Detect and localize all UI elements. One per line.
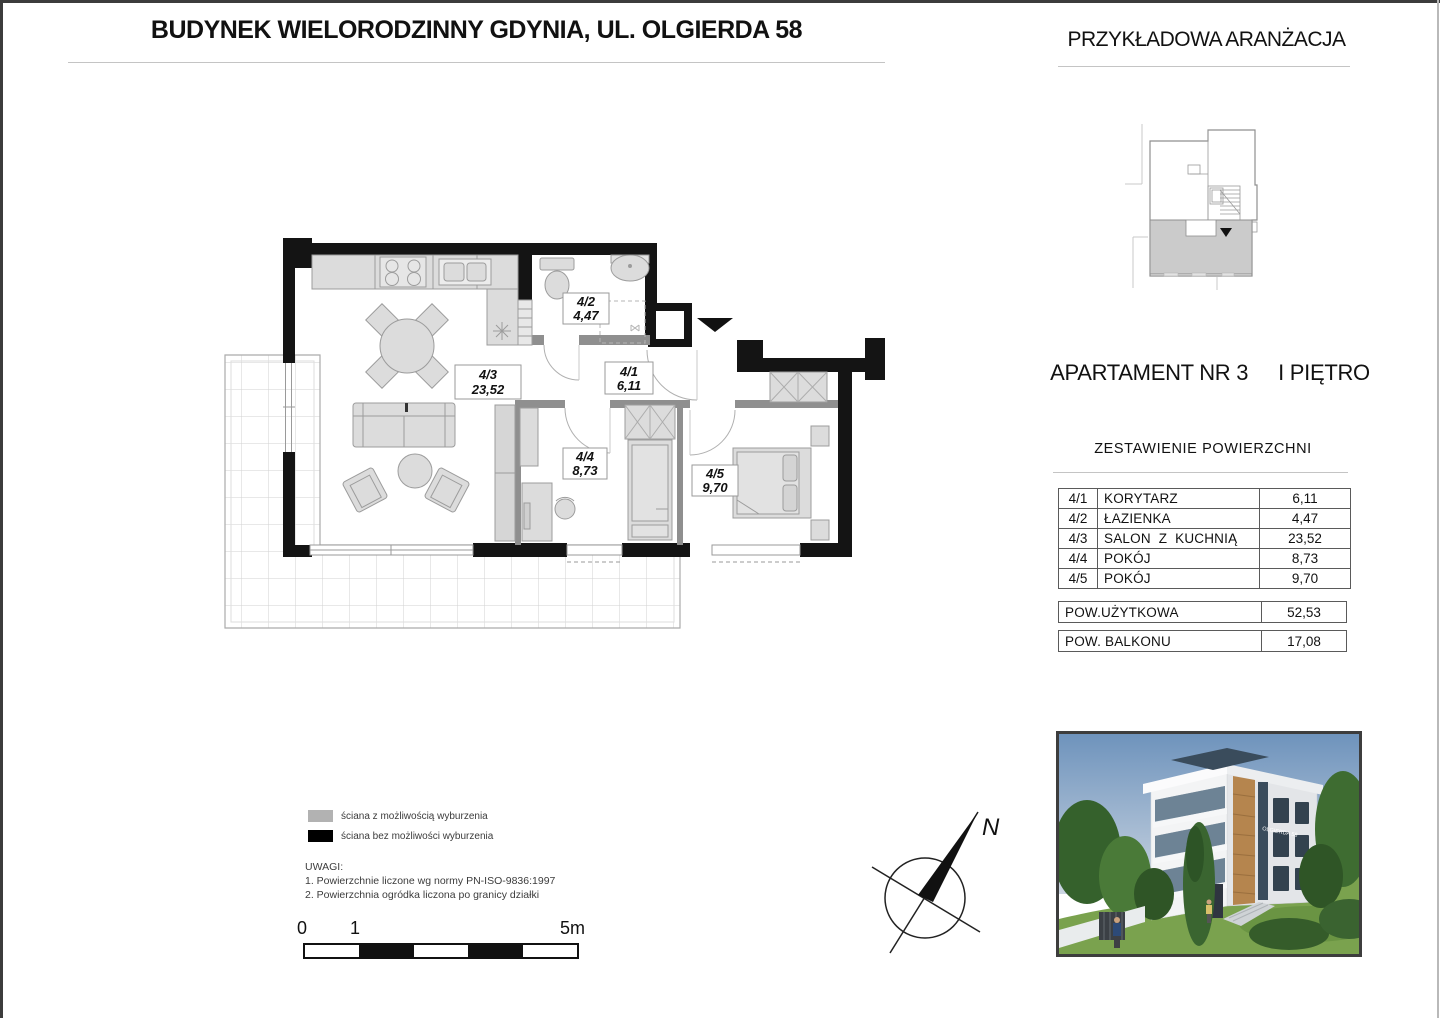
room-label-4-4: 4/4 8,73 — [563, 448, 607, 479]
room-area: 8,73 — [1260, 549, 1351, 569]
scale-tick-5m: 5m — [560, 918, 585, 939]
note-line: 2. Powierzchnia ogródka liczona po grani… — [305, 888, 555, 902]
wardrobe — [625, 405, 675, 439]
legend-item: ściana bez możliwości wyburzenia — [308, 830, 493, 842]
svg-text:4/2: 4/2 — [576, 294, 596, 309]
balcony-area-box: POW. BALKONU 17,08 — [1058, 630, 1347, 652]
usable-area-label: POW.UŻYTKOWA — [1059, 602, 1261, 622]
title-underline — [68, 62, 885, 63]
scale-segment — [305, 945, 359, 957]
entrance-arrow-icon — [697, 318, 733, 332]
apartment-number: APARTAMENT NR 3 — [1050, 360, 1248, 386]
room-label-4-1: 4/1 6,11 — [605, 362, 653, 394]
table-row: 4/1 KORYTARZ 6,11 — [1059, 489, 1351, 509]
sheet-title: BUDYNEK WIELORODZINNY GDYNIA, UL. OLGIER… — [68, 16, 885, 45]
room-area: 6,11 — [1260, 489, 1351, 509]
vent-symbol — [631, 325, 639, 331]
svg-text:4/1: 4/1 — [619, 364, 638, 379]
scale-segment — [523, 945, 577, 957]
cabinet — [520, 408, 538, 466]
room-name: SALON Z KUCHNIĄ — [1098, 529, 1260, 549]
building-photo: OLGIERDA 58 — [1056, 731, 1362, 957]
sheet-border-top — [0, 0, 1440, 3]
svg-text:23,52: 23,52 — [471, 382, 505, 397]
room-code: 4/2 — [1059, 509, 1098, 529]
sheet-border-right — [1437, 0, 1439, 1018]
scale-tick-1: 1 — [350, 918, 360, 939]
scale-tick-0: 0 — [297, 918, 307, 939]
svg-text:4,47: 4,47 — [572, 308, 599, 323]
room-code: 4/5 — [1059, 569, 1098, 589]
room-code: 4/3 — [1059, 529, 1098, 549]
legend-label: ściana bez możliwości wyburzenia — [341, 831, 493, 842]
room-code: 4/1 — [1059, 489, 1098, 509]
svg-text:8,73: 8,73 — [572, 463, 598, 478]
usable-area-box: POW.UŻYTKOWA 52,53 — [1058, 601, 1347, 623]
desk — [522, 483, 552, 541]
usable-area-value: 52,53 — [1261, 602, 1346, 622]
balcony-area-label: POW. BALKONU — [1059, 631, 1261, 651]
single-bed — [628, 440, 672, 540]
svg-text:9,70: 9,70 — [702, 480, 728, 495]
nightstand — [811, 426, 829, 446]
svg-text:4/4: 4/4 — [575, 449, 595, 464]
scale-bar — [303, 943, 579, 959]
svg-text:4/5: 4/5 — [705, 466, 725, 481]
north-needle-icon — [918, 812, 978, 902]
dining-table — [366, 304, 449, 389]
notes: UWAGI: 1. Powierzchnie liczone wg normy … — [305, 860, 555, 902]
double-bed — [733, 448, 811, 518]
compass: N — [860, 785, 1010, 985]
table-row: 4/5 POKÓJ 9,70 — [1059, 569, 1351, 589]
bookshelf — [495, 405, 515, 541]
legend-swatch-black — [308, 830, 333, 842]
table-row: 4/4 POKÓJ 8,73 — [1059, 549, 1351, 569]
key-plan-hall-notch — [1186, 220, 1216, 236]
drawing-sheet: BUDYNEK WIELORODZINNY GDYNIA, UL. OLGIER… — [0, 0, 1440, 1018]
armchair — [342, 467, 388, 513]
desk-chair — [555, 497, 575, 519]
scale-segment — [414, 945, 468, 957]
room-area: 4,47 — [1260, 509, 1351, 529]
legend-label: ściana z możliwością wyburzenia — [341, 811, 488, 822]
building-rendering: OLGIERDA 58 — [1059, 734, 1359, 954]
svg-text:4/3: 4/3 — [478, 367, 498, 382]
notes-title: UWAGI: — [305, 860, 555, 874]
room-code: 4/4 — [1059, 549, 1098, 569]
room-label-4-5: 4/5 9,70 — [692, 465, 738, 496]
room-label-4-3: 4/3 23,52 — [455, 365, 521, 399]
room-area: 9,70 — [1260, 569, 1351, 589]
nightstand — [811, 520, 829, 540]
entry-shaft — [656, 311, 684, 339]
balcony-area-value: 17,08 — [1261, 631, 1346, 651]
floor-plan: 4/3 23,52 4/2 4,47 4/1 6,11 4/4 8,73 4/5 — [215, 228, 895, 633]
apartment-heading: APARTAMENT NR 3 I PIĘTRO — [1040, 360, 1380, 386]
arrangement-heading: PRZYKŁADOWA ARANŻACJA — [1058, 28, 1355, 52]
washbasin — [611, 255, 649, 281]
room-name: POKÓJ — [1098, 569, 1260, 589]
room-name: ŁAZIENKA — [1098, 509, 1260, 529]
room-name: POKÓJ — [1098, 549, 1260, 569]
coffee-table — [398, 454, 432, 488]
table-row: 4/3 SALON Z KUCHNIĄ 23,52 — [1059, 529, 1351, 549]
room-area: 23,52 — [1260, 529, 1351, 549]
room-name: KORYTARZ — [1098, 489, 1260, 509]
scale-segment — [468, 945, 522, 957]
note-line: 1. Powierzchnie liczone wg normy PN-ISO-… — [305, 874, 555, 888]
north-label: N — [982, 814, 1000, 841]
wardrobe — [770, 372, 827, 402]
sofa — [353, 403, 455, 447]
legend-swatch-gray — [308, 810, 333, 822]
arrangement-underline — [1058, 66, 1350, 67]
areas-heading: ZESTAWIENIE POWIERZCHNI — [1058, 441, 1348, 457]
scale-segment — [359, 945, 413, 957]
room-label-4-2: 4/2 4,47 — [563, 293, 609, 324]
key-plan — [1120, 110, 1300, 290]
table-row: 4/2 ŁAZIENKA 4,47 — [1059, 509, 1351, 529]
areas-table: 4/1 KORYTARZ 6,11 4/2 ŁAZIENKA 4,47 4/3 … — [1058, 488, 1351, 589]
apartment-floor: I PIĘTRO — [1278, 360, 1370, 386]
sheet-border-left — [0, 0, 3, 1018]
areas-underline — [1053, 472, 1348, 473]
svg-text:6,11: 6,11 — [617, 378, 641, 393]
legend-item: ściana z możliwością wyburzenia — [308, 810, 488, 822]
key-plan-windows — [1164, 273, 1234, 276]
